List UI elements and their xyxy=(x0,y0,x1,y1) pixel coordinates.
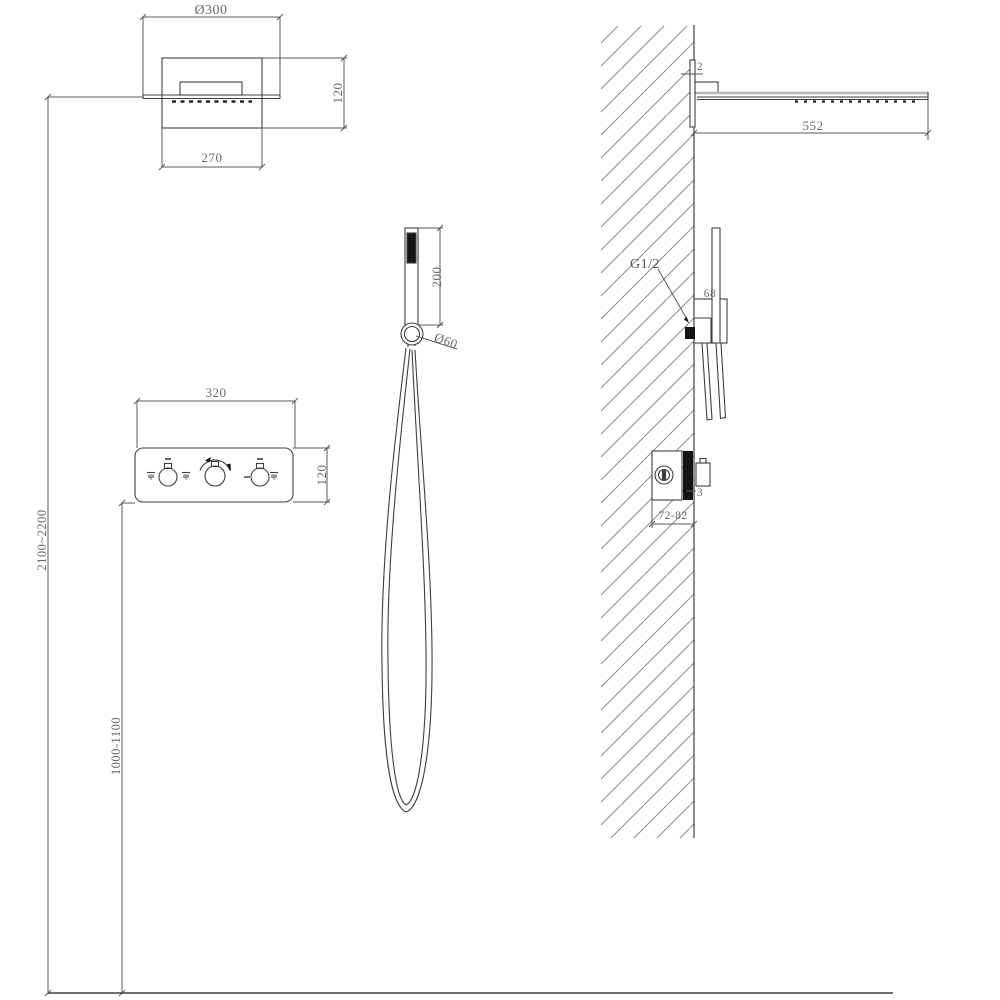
panel-height-label: 120 xyxy=(315,459,329,491)
wand-length-label: 200 xyxy=(430,261,444,293)
plate-thickness-label: 2 xyxy=(694,60,706,74)
thread-size-label: G1/2 xyxy=(624,258,666,272)
embed-depth-label: 72-82 xyxy=(651,509,695,523)
spray-icon xyxy=(270,473,278,480)
diverter-knob xyxy=(147,459,190,486)
spray-face xyxy=(407,233,416,263)
overhead-spray-icon xyxy=(147,473,155,480)
wall-hatch xyxy=(601,26,694,838)
side-view xyxy=(601,25,931,838)
rain-head-width-label: 270 xyxy=(192,151,232,165)
rain-head-diameter-label: Ø300 xyxy=(183,4,239,18)
panel-height-from-floor-label: 1000-1100 xyxy=(109,704,123,788)
temperature-knob xyxy=(200,457,231,486)
hose-side-b xyxy=(716,343,726,419)
projection-label: 552 xyxy=(793,119,833,133)
height-dimensions xyxy=(45,94,893,996)
rain-head-depth-label: 120 xyxy=(331,77,345,109)
drawing-linework xyxy=(0,0,1000,1000)
front-hand-shower xyxy=(382,225,457,812)
hose-side-a xyxy=(702,343,712,420)
valve-knob-side xyxy=(696,463,710,486)
wand-side xyxy=(712,228,720,343)
shower-installation-drawing: Ø300 120 270 320 120 200 Ø60 2100~2200 1… xyxy=(0,0,1000,1000)
holder-size-label: 68 xyxy=(700,287,720,301)
faceplate-thickness-label: 3 xyxy=(694,486,706,500)
flow-knob xyxy=(244,459,278,486)
panel-width-label: 320 xyxy=(196,386,236,400)
rain-head-height-label: 2100~2200 xyxy=(35,498,49,582)
hand-spray-icon xyxy=(182,473,190,480)
front-rain-head xyxy=(140,14,347,170)
wall-elbow xyxy=(685,327,695,339)
valve-faceplate-edge xyxy=(683,451,693,500)
front-mixer-panel xyxy=(134,398,330,505)
hose-loop-inner xyxy=(388,349,426,805)
valve-body xyxy=(652,451,682,500)
